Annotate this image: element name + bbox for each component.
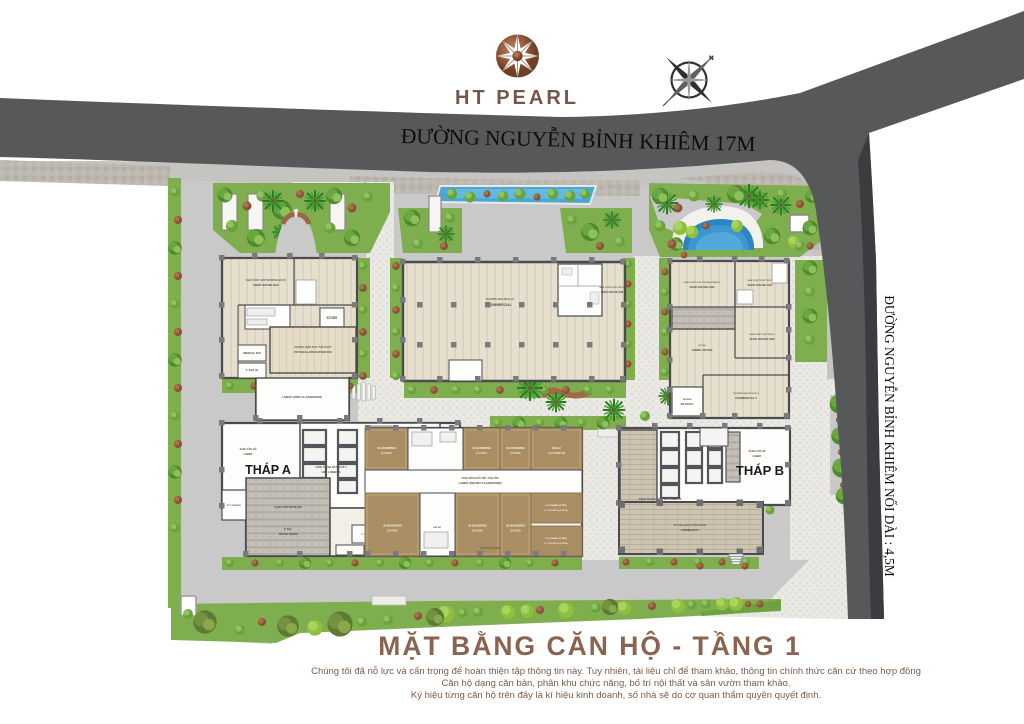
svg-text:SÂN PHƠI NẮNG: SÂN PHƠI NẮNG	[480, 547, 500, 550]
svg-text:(16 KIDS): (16 KIDS)	[510, 530, 521, 533]
svg-text:6-12 THÁNG (8 TRẺ): 6-12 THÁNG (8 TRẺ)	[545, 537, 566, 540]
svg-text:SHOP HOUSE-SH1: SHOP HOUSE-SH1	[253, 283, 279, 287]
svg-text:15-18 MONTHS: 15-18 MONTHS	[377, 446, 396, 450]
svg-text:SHOP HOUSE-SH2: SHOP HOUSE-SH2	[690, 285, 715, 289]
svg-text:SHOP HOUSE-SH7: SHOP HOUSE-SH7	[748, 283, 773, 287]
svg-text:(16 KIDS): (16 KIDS)	[472, 530, 483, 533]
svg-text:FK1-10: FK1-10	[552, 446, 561, 450]
svg-text:SẢNH CĂN HỘ: SẢNH CĂN HỘ	[240, 448, 257, 451]
svg-text:HT PEARL: HT PEARL	[455, 87, 579, 109]
svg-text:Ký hiệu từng căn hộ trên đây l: Ký hiệu từng căn hộ trên đây là kí hiệu …	[411, 690, 821, 701]
svg-text:19-24 MONTHS: 19-24 MONTHS	[548, 452, 566, 455]
svg-text:PY CONTROL: PY CONTROL	[227, 505, 242, 507]
svg-text:SẢNH CĂN HỘ: SẢNH CĂN HỘ	[749, 450, 766, 453]
svg-text:VỆ SINH: VỆ SINH	[683, 398, 692, 401]
svg-text:COMMERCIAL 2: COMMERCIAL 2	[735, 396, 757, 400]
svg-text:COMMUNITY: COMMUNITY	[681, 528, 700, 532]
svg-text:6-12 THÁNG (8 TRẺ): 6-12 THÁNG (8 TRẺ)	[545, 504, 566, 507]
svg-text:T. SAO (1): T. SAO (1)	[246, 368, 258, 372]
svg-text:SẢNH THANG MÁY THÁP A: SẢNH THANG MÁY THÁP A	[315, 466, 347, 469]
svg-text:(70 KIDS): (70 KIDS)	[510, 452, 521, 455]
svg-text:NHÀ Ở KẾT HỢP TM DV: NHÀ Ở KẾT HỢP TM DV	[749, 333, 775, 336]
svg-text:25-36 MONTHS: 25-36 MONTHS	[468, 524, 487, 528]
svg-text:25-36 MONTHS: 25-36 MONTHS	[506, 524, 525, 528]
svg-text:TRASH ROOM: TRASH ROOM	[278, 532, 298, 536]
svg-text:LOBBY: LOBBY	[752, 454, 761, 458]
svg-text:THƯƠNG MẠI DỊCH VỤ: THƯƠNG MẠI DỊCH VỤ	[486, 297, 515, 301]
svg-text:SH SINH HOẠT CỘNG ĐỒNG: SH SINH HOẠT CỘNG ĐỒNG	[674, 524, 707, 527]
svg-text:SHOP HOUSE-SH6: SHOP HOUSE-SH6	[750, 337, 775, 341]
svg-text:STORE: STORE	[327, 316, 338, 320]
svg-text:NHÀ Ở KẾT HỢP TM DV: NHÀ Ở KẾT HỢP TM DV	[747, 279, 773, 282]
svg-text:N: N	[709, 55, 714, 62]
svg-text:MEDICAL R.M: MEDICAL R.M	[243, 351, 260, 355]
svg-text:19-24 MONTHS: 19-24 MONTHS	[506, 446, 525, 450]
svg-text:ADMIN. OFFICE: ADMIN. OFFICE	[692, 348, 713, 352]
svg-text:SHOP HOUSE-SH3: SHOP HOUSE-SH3	[601, 291, 624, 294]
svg-text:NHÀ Ở KẾT HỢP TM DV: NHÀ Ở KẾT HỢP TM DV	[599, 286, 625, 289]
svg-text:6-12 MONTHS (8 KIDS): 6-12 MONTHS (8 KIDS)	[544, 543, 568, 545]
svg-text:25-36 MONTHS: 25-36 MONTHS	[383, 524, 402, 528]
svg-text:Căn hộ dạng căn bản, phân khu: Căn hộ dạng căn bản, phân khu chức năng,…	[441, 678, 790, 689]
svg-text:VP BQL: VP BQL	[698, 345, 707, 347]
svg-text:THÁP A: THÁP A	[245, 462, 291, 477]
svg-text:PHYSICAL EDUCATION R.M: PHYSICAL EDUCATION R.M	[294, 350, 332, 354]
svg-text:GIỮ XE: GIỮ XE	[433, 526, 441, 529]
svg-text:THÁP B: THÁP B	[736, 463, 784, 478]
svg-text:6-12 MONTHS (8 KIDS): 6-12 MONTHS (8 KIDS)	[544, 510, 568, 512]
svg-text:P. RÁC: P. RÁC	[284, 528, 292, 531]
svg-text:COMMERCIAL: COMMERCIAL	[488, 303, 511, 307]
svg-text:LIFT LOBBY A: LIFT LOBBY A	[321, 470, 340, 474]
svg-text:(14 KIDS): (14 KIDS)	[381, 452, 392, 455]
svg-text:Chúng tôi đã nỗ lực và cẩn trọ: Chúng tôi đã nỗ lực và cẩn trọng để hoàn…	[311, 666, 921, 677]
svg-text:LOBBY (INFANT CLASSROOM): LOBBY (INFANT CLASSROOM)	[459, 481, 502, 485]
svg-text:MẶT BẰNG CĂN HỘ - TẦNG 1: MẶT BẰNG CĂN HỘ - TẦNG 1	[378, 631, 801, 661]
svg-text:FM-TOILET: FM-TOILET	[681, 403, 694, 406]
svg-text:13-18 MONTHS: 13-18 MONTHS	[472, 446, 491, 450]
svg-text:NHÀ Ở KẾT HỢP THƯƠNG MẠI DV: NHÀ Ở KẾT HỢP THƯƠNG MẠI DV	[246, 279, 286, 282]
svg-text:NHÀ Ở KẾT HỢP THƯƠNG MẠI DV: NHÀ Ở KẾT HỢP THƯƠNG MẠI DV	[684, 281, 721, 284]
svg-text:(16 KIDS): (16 KIDS)	[387, 530, 398, 533]
svg-text:THƯƠNG MẠI DỊCH VỤ 2: THƯƠNG MẠI DỊCH VỤ 2	[733, 392, 760, 395]
svg-text:SẢNH ĐÓN KHỐI TRẺ / NHÀ TRẺ: SẢNH ĐÓN KHỐI TRẺ / NHÀ TRẺ	[461, 477, 499, 480]
svg-text:LOBBY: LOBBY	[243, 452, 252, 456]
svg-text:LOBBY (PRE CLASSROOM): LOBBY (PRE CLASSROOM)	[282, 395, 322, 399]
svg-text:KHU/LUYỆN TRASH RM: KHU/LUYỆN TRASH RM	[274, 506, 301, 509]
svg-text:ĐƯỜNG NGUYỄN BỈNH KHIÊM NỐI DÀ: ĐƯỜNG NGUYỄN BỈNH KHIÊM NỐI DÀI : 4,5M	[882, 295, 897, 577]
svg-text:(14 KIDS): (14 KIDS)	[476, 452, 487, 455]
